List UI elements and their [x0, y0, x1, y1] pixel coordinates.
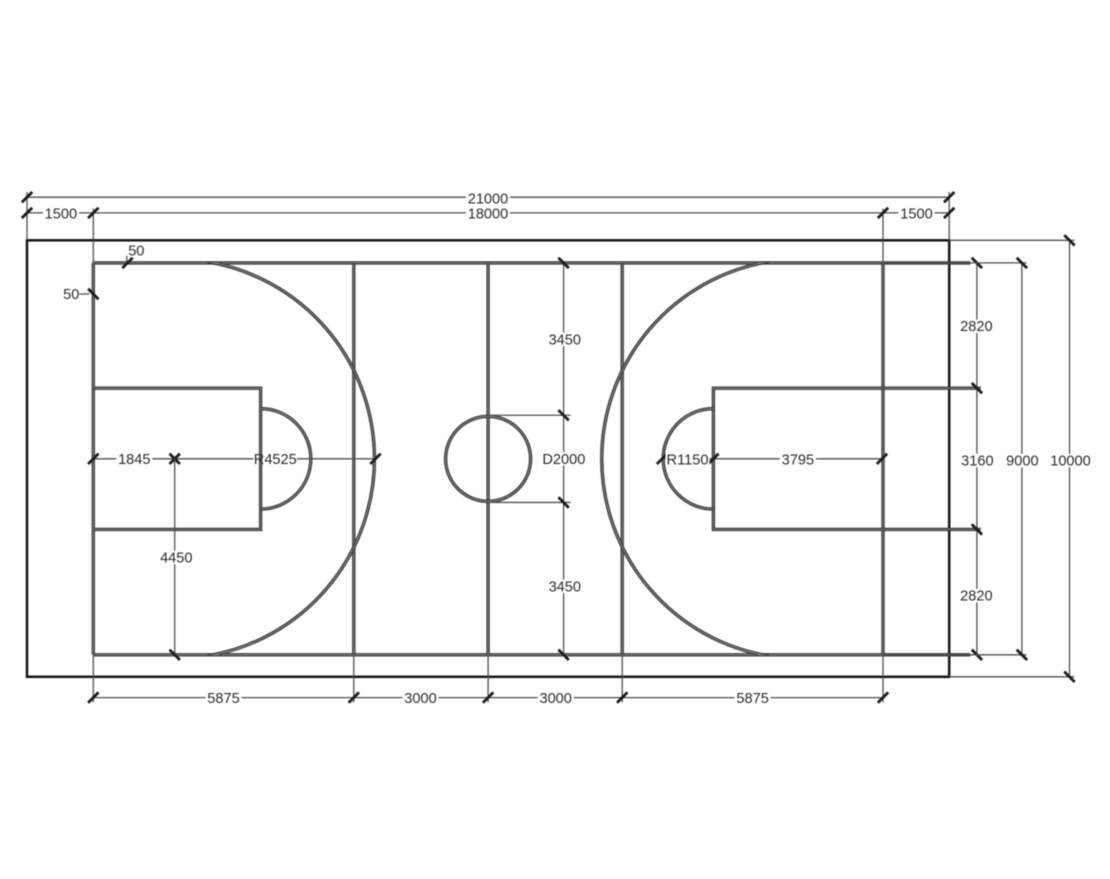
svg-text:1845: 1845: [118, 452, 150, 468]
svg-text:3000: 3000: [404, 691, 436, 707]
svg-text:3450: 3450: [549, 332, 581, 348]
svg-text:10000: 10000: [1050, 454, 1091, 470]
svg-text:4450: 4450: [160, 551, 192, 567]
svg-text:2820: 2820: [960, 589, 992, 605]
svg-text:R4525: R4525: [254, 452, 297, 468]
svg-text:3160: 3160: [961, 454, 993, 470]
svg-text:1500: 1500: [45, 207, 77, 223]
svg-text:R1150: R1150: [667, 452, 709, 468]
svg-text:3000: 3000: [539, 691, 571, 707]
svg-text:50: 50: [63, 287, 79, 303]
svg-text:1500: 1500: [900, 207, 932, 223]
svg-text:3795: 3795: [782, 452, 814, 468]
svg-text:50: 50: [128, 243, 144, 259]
svg-text:5875: 5875: [207, 691, 239, 707]
svg-text:3450: 3450: [549, 579, 581, 595]
svg-text:21000: 21000: [468, 191, 509, 207]
svg-text:2820: 2820: [960, 319, 992, 335]
svg-text:9000: 9000: [1006, 454, 1038, 470]
svg-text:18000: 18000: [468, 207, 509, 223]
svg-text:D2000: D2000: [542, 452, 585, 468]
svg-text:5875: 5875: [736, 691, 768, 707]
